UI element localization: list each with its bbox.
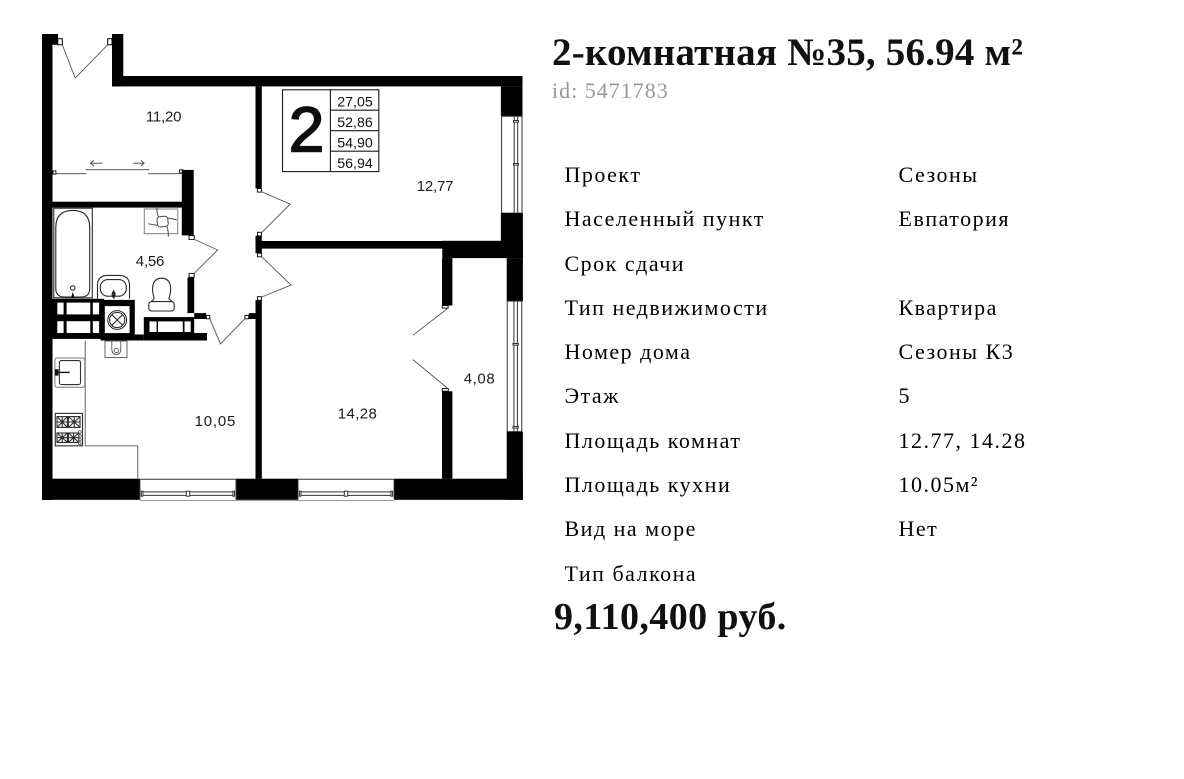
svg-text:4,08: 4,08 <box>464 371 496 388</box>
svg-text:14,28: 14,28 <box>338 405 378 422</box>
svg-text:54,90: 54,90 <box>337 135 373 151</box>
svg-text:11,20: 11,20 <box>146 108 181 125</box>
svg-text:10,05: 10,05 <box>195 413 237 430</box>
svg-text:52,86: 52,86 <box>337 115 373 131</box>
svg-text:27,05: 27,05 <box>337 94 373 110</box>
svg-text:56,94: 56,94 <box>337 156 373 172</box>
svg-text:2: 2 <box>289 94 325 166</box>
svg-text:4,56: 4,56 <box>136 253 164 270</box>
svg-text:12,77: 12,77 <box>417 178 454 195</box>
